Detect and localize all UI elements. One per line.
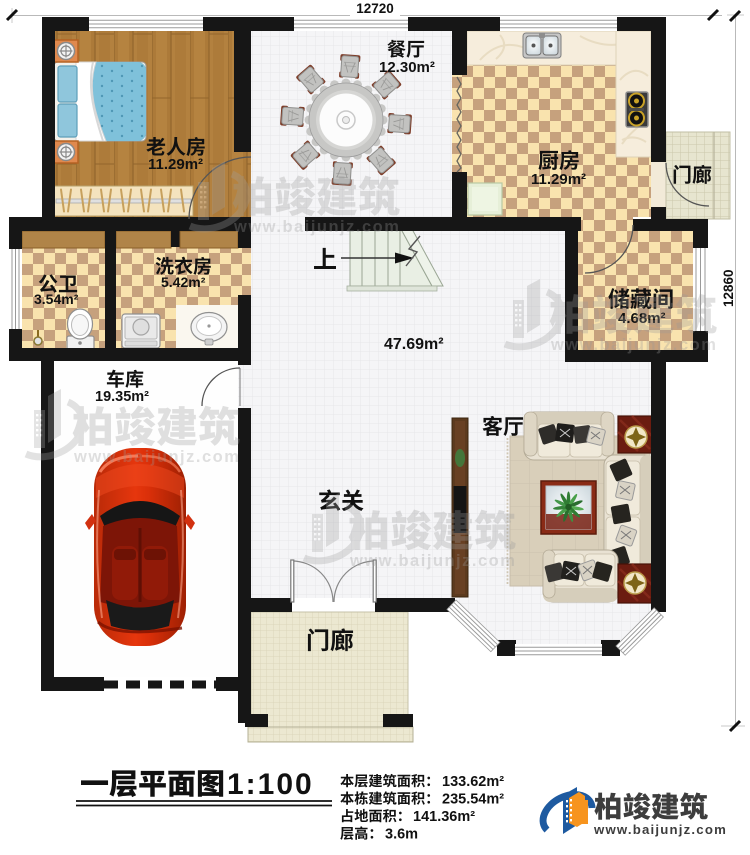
svg-text:11.29m²: 11.29m² [531,171,586,188]
svg-text:141.36m²: 141.36m² [413,809,475,825]
svg-text:3.54m²: 3.54m² [34,291,79,307]
svg-text:235.54m²: 235.54m² [442,792,504,808]
svg-text:133.62m²: 133.62m² [442,774,504,790]
svg-text:47.69m²: 47.69m² [384,336,444,353]
svg-text:12.30m²: 12.30m² [379,59,435,76]
svg-text:www.baijunjz.com: www.baijunjz.com [349,552,516,570]
svg-text:12720: 12720 [356,1,394,16]
svg-text:5.42m²: 5.42m² [161,274,206,290]
svg-text:19.35m²: 19.35m² [95,389,149,405]
svg-text:www.baijunjz.com: www.baijunjz.com [73,448,240,466]
svg-text:www.baijunjz.com: www.baijunjz.com [550,336,717,354]
svg-text:1:100: 1:100 [227,768,314,801]
svg-text:11.29m²: 11.29m² [148,156,203,173]
svg-text:www.baijunjz.com: www.baijunjz.com [593,822,727,837]
svg-text:www.baijunjz.com: www.baijunjz.com [233,218,400,236]
svg-text:12860: 12860 [721,269,736,307]
svg-text:3.6m: 3.6m [385,827,418,843]
